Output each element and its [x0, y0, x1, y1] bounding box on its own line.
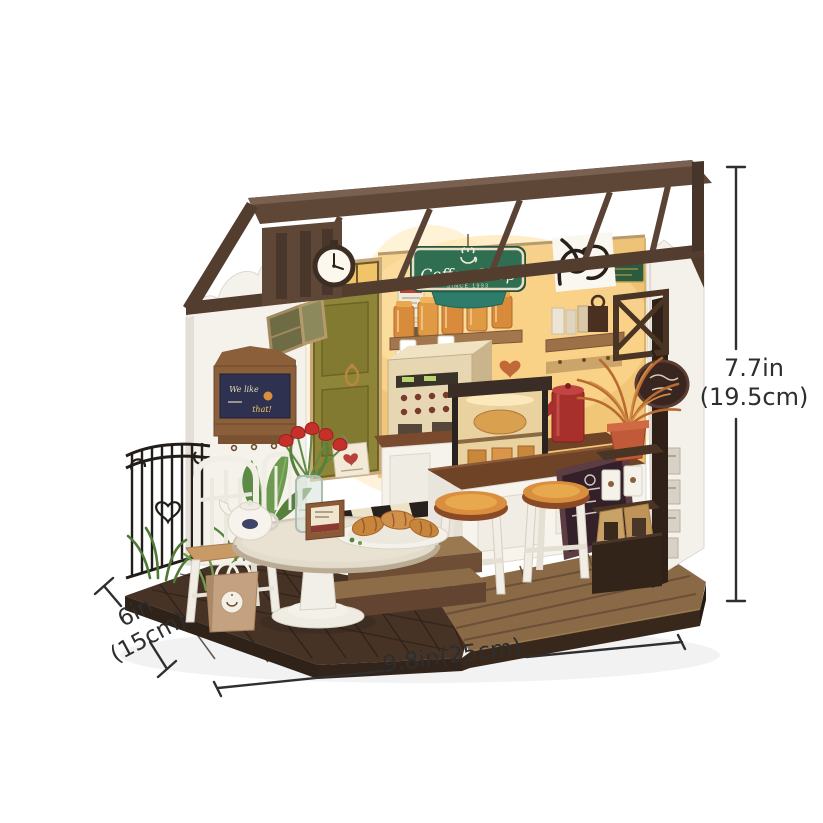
blackboard-line1: We like — [229, 385, 259, 394]
height-metric: (19.5cm) — [688, 383, 820, 412]
bread-loaf — [474, 410, 526, 434]
product-image: Coffee Shop SINCE 1993 — [0, 0, 823, 823]
sign-awning — [432, 292, 506, 308]
height-dimension-label: 7.7in (19.5cm) — [688, 354, 820, 413]
blackboard-line2: that! — [252, 405, 272, 414]
height-value: 7.7in — [688, 354, 820, 383]
table-card — [306, 500, 344, 540]
coffee-grinder — [588, 306, 608, 332]
